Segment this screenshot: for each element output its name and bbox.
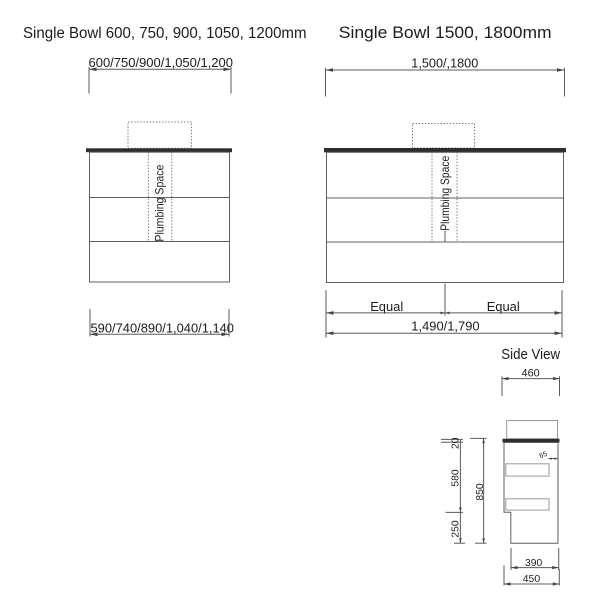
svg-text:250: 250	[450, 520, 461, 537]
svg-text:600/750/900/1,050/1,200: 600/750/900/1,050/1,200	[89, 55, 234, 70]
svg-text:580: 580	[450, 469, 461, 486]
svg-text:Equal: Equal	[487, 299, 520, 314]
svg-text:Plumbing Space: Plumbing Space	[438, 156, 452, 231]
svg-text:Side View: Side View	[501, 347, 560, 363]
svg-text:Single Bowl 600, 750, 900, 105: Single Bowl 600, 750, 900, 1050, 1200mm	[23, 25, 307, 42]
svg-text:Plumbing Space: Plumbing Space	[153, 164, 167, 241]
svg-text:1,490/1,790: 1,490/1,790	[411, 318, 479, 333]
svg-text:590/740/890/1,040/1,140: 590/740/890/1,040/1,140	[91, 320, 235, 335]
svg-text:Single Bowl 1500, 1800mm: Single Bowl 1500, 1800mm	[339, 23, 552, 42]
svg-text:Equal: Equal	[370, 299, 403, 314]
svg-text:20: 20	[450, 437, 461, 449]
svg-text:390: 390	[525, 558, 542, 569]
svg-text:1,500/,1800: 1,500/,1800	[411, 55, 478, 70]
svg-text:850: 850	[475, 483, 486, 500]
svg-text:450: 450	[523, 574, 541, 585]
svg-text:460: 460	[522, 368, 540, 380]
